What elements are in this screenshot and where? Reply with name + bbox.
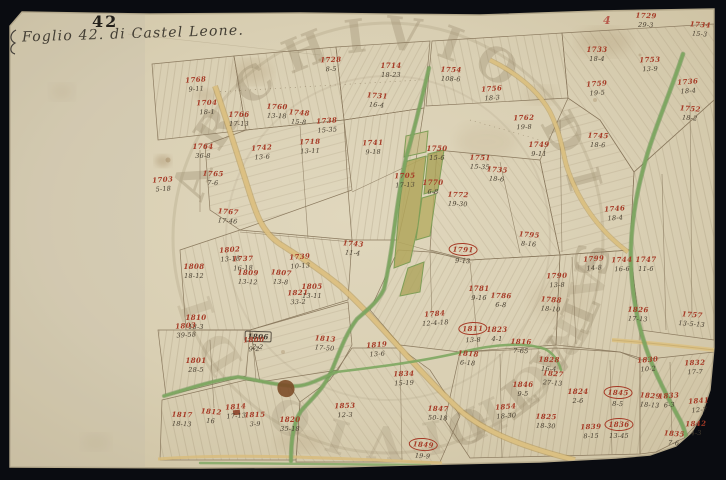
map-scan-stage: ARCHIVIO DI STATO ARCHIVIO DI STATO bbox=[0, 0, 726, 480]
cadastral-map-sheet: ARCHIVIO DI STATO ARCHIVIO DI STATO bbox=[0, 0, 726, 480]
corner-page-stamp: 4 bbox=[603, 14, 611, 27]
